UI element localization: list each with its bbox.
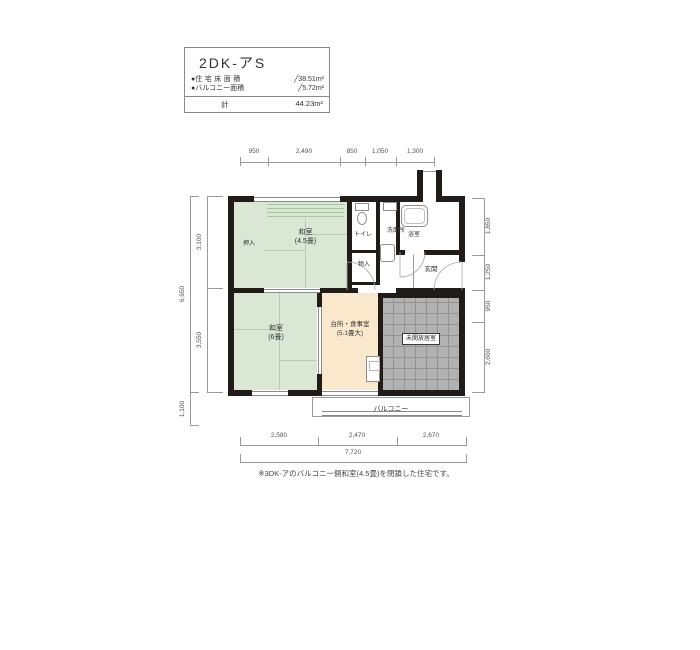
dim-tick bbox=[240, 437, 241, 446]
closed-opening-hatch bbox=[267, 204, 344, 217]
dim-label: 950 bbox=[234, 148, 274, 155]
label-genkan: 玄関 bbox=[416, 266, 446, 274]
sink-icon bbox=[383, 202, 397, 211]
dim-line-top bbox=[240, 162, 435, 163]
bathtub-icon bbox=[401, 205, 428, 227]
dim-line-left-inner bbox=[207, 196, 208, 393]
wall bbox=[424, 250, 465, 255]
dim-label: 1,250 bbox=[485, 255, 495, 289]
label-dk-name: 台所・食事室 bbox=[322, 320, 378, 329]
dim-tick bbox=[396, 157, 397, 166]
wall bbox=[417, 170, 423, 202]
dim-tick bbox=[190, 392, 199, 393]
title-box: 2DK-アS ●住宅床面積 ╱38.51m² ●バルコニー面積 ╱5.72m² … bbox=[184, 47, 330, 113]
dim-label-total: 7,720 bbox=[323, 449, 383, 456]
dim-tick bbox=[207, 288, 223, 289]
duct-line bbox=[423, 171, 436, 172]
washbasin-icon bbox=[380, 244, 395, 262]
dim-tick bbox=[207, 196, 223, 197]
genkan-step-line bbox=[413, 255, 414, 288]
dim-tick bbox=[472, 290, 485, 291]
floor-area-value: ╱38.51m² bbox=[294, 75, 324, 84]
dim-tick bbox=[472, 198, 485, 199]
dim-label: 1,300 bbox=[395, 148, 435, 155]
wall bbox=[228, 288, 264, 293]
label-monoire: 物入 bbox=[350, 261, 378, 269]
window bbox=[322, 391, 378, 396]
wall bbox=[378, 293, 465, 298]
dim-tick bbox=[472, 392, 485, 393]
dim-label: 2,670 bbox=[401, 432, 461, 439]
label-washitsu-6-size: (6畳) bbox=[236, 333, 316, 342]
kitchen-counter-icon bbox=[366, 356, 380, 382]
label-closed-room: 未開放居室 bbox=[402, 333, 440, 345]
fusuma-doors bbox=[264, 289, 320, 293]
plan-title: 2DK-アS bbox=[199, 53, 329, 73]
label-toilet: トイレ bbox=[348, 231, 378, 239]
wall bbox=[352, 282, 380, 285]
dim-tick bbox=[397, 437, 398, 446]
dim-label: 2,580 bbox=[249, 432, 309, 439]
total-value: 44.23m² bbox=[295, 99, 323, 110]
toilet-bowl-icon bbox=[357, 212, 367, 225]
dim-tick bbox=[365, 157, 366, 166]
floor-area-row: ●住宅床面積 ╱38.51m² bbox=[185, 75, 329, 84]
dim-label: 3,550 bbox=[196, 323, 206, 357]
balcony-ledge bbox=[322, 411, 462, 416]
dim-label: 950 bbox=[485, 289, 495, 323]
dim-tick bbox=[268, 157, 269, 166]
dim-label: 3,100 bbox=[196, 225, 206, 259]
label-washitsu-45: 和室 (4.5畳) bbox=[264, 228, 347, 246]
dim-label: 2,470 bbox=[327, 432, 387, 439]
label-washitsu-6-name: 和室 bbox=[236, 324, 316, 333]
label-dk: 台所・食事室 (5.1畳大) bbox=[322, 320, 378, 338]
wall bbox=[317, 374, 322, 396]
toilet-tank-icon bbox=[355, 203, 369, 211]
label-oshiire: 押入 bbox=[234, 240, 264, 248]
dim-line-bottom-total bbox=[240, 462, 467, 463]
dim-tick bbox=[472, 255, 485, 256]
dim-tick bbox=[240, 454, 241, 463]
dim-tick bbox=[434, 157, 435, 166]
dim-line-bottom bbox=[240, 445, 467, 446]
tatami-line bbox=[279, 360, 317, 361]
wall bbox=[352, 250, 376, 253]
label-dk-size: (5.1畳大) bbox=[322, 329, 378, 338]
wall bbox=[317, 293, 322, 307]
dim-label: 1,100 bbox=[179, 392, 189, 426]
label-yokushitsu: 浴室 bbox=[398, 231, 430, 239]
label-washitsu-45-size: (4.5畳) bbox=[264, 237, 347, 246]
wall bbox=[459, 290, 465, 396]
wall bbox=[320, 288, 358, 293]
label-washitsu-45-name: 和室 bbox=[264, 228, 347, 237]
wall bbox=[228, 196, 234, 396]
dim-tick bbox=[190, 425, 199, 426]
sliding-door bbox=[318, 307, 322, 374]
dim-tick bbox=[340, 157, 341, 166]
total-area-row: 計 44.23m² bbox=[185, 96, 329, 110]
dim-tick bbox=[466, 454, 467, 463]
dim-label: 2,490 bbox=[284, 148, 324, 155]
dim-label: 1,850 bbox=[485, 209, 495, 243]
label-washitsu-6: 和室 (6畳) bbox=[236, 324, 316, 342]
wall bbox=[376, 200, 380, 252]
wall bbox=[347, 196, 352, 293]
total-label: 計 bbox=[221, 99, 229, 110]
wall bbox=[396, 250, 405, 255]
dim-label: 1,050 bbox=[360, 148, 400, 155]
balcony-area-value: ╱5.72m² bbox=[298, 84, 324, 93]
wall bbox=[228, 390, 252, 396]
tatami-line bbox=[264, 250, 305, 251]
window bbox=[252, 391, 288, 396]
floor-plan-page: 2DK-アS ●住宅床面積 ╱38.51m² ●バルコニー面積 ╱5.72m² … bbox=[0, 0, 700, 650]
balcony-area-row: ●バルコニー面積 ╱5.72m² bbox=[185, 84, 329, 93]
dim-label: 6,650 bbox=[179, 277, 189, 311]
footnote: ※3DK-アのバルコニー側和室(4.5畳)を閉鎖した住宅です。 bbox=[230, 468, 482, 479]
dim-tick bbox=[240, 157, 241, 166]
wall bbox=[378, 390, 465, 396]
window bbox=[254, 197, 340, 202]
dim-label: 2,600 bbox=[485, 340, 495, 374]
floor-area-label: 住宅床面積 bbox=[195, 76, 243, 83]
dim-tick bbox=[472, 322, 485, 323]
balcony-area-label: バルコニー面積 bbox=[195, 85, 244, 92]
dim-tick bbox=[207, 392, 223, 393]
dim-tick bbox=[466, 437, 467, 446]
dim-tick bbox=[190, 196, 199, 197]
dim-tick bbox=[318, 437, 319, 446]
